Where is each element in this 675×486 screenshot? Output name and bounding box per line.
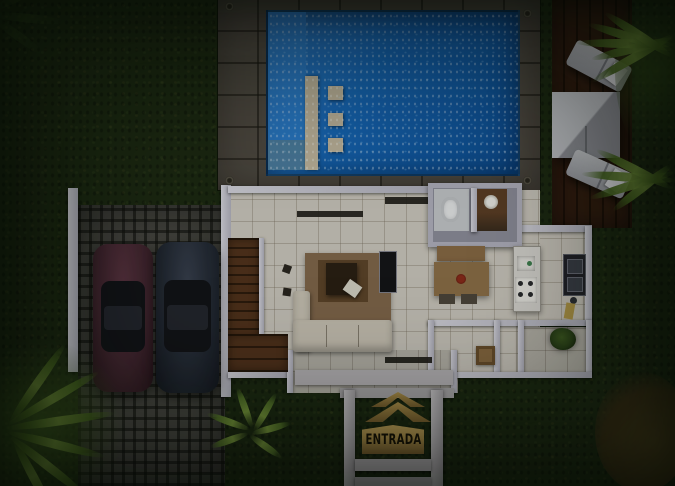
car-roof: [167, 305, 207, 329]
sideboard: [437, 246, 485, 261]
tv-panel: [379, 251, 397, 293]
laundry-basin: [476, 346, 495, 365]
oven-door: [567, 259, 583, 274]
burner: [518, 281, 523, 286]
car-roof: [104, 306, 142, 330]
sofa-cushion-seam: [326, 325, 327, 347]
bathroom: [428, 183, 522, 247]
staircase: [228, 238, 260, 338]
sliding-door: [297, 211, 363, 217]
walkway-slab: [295, 370, 453, 385]
south-wall-left: [228, 372, 290, 378]
swimming-pool: [266, 10, 520, 176]
deck-drain-icon: [523, 176, 532, 185]
fern-frond: [248, 433, 283, 461]
cooktop: [515, 277, 537, 303]
pool-step-pad: [328, 113, 343, 126]
walkway-rail-left: [344, 390, 355, 486]
sofa-cushion-seam: [358, 325, 359, 347]
sliding-door: [385, 197, 429, 204]
walkway-slat: [355, 459, 431, 471]
north-wall: [228, 186, 432, 193]
bush: [595, 372, 675, 486]
entrada-sign-label: ENTRADA: [365, 431, 421, 447]
palm-frond: [6, 342, 68, 425]
east-wall-lower: [586, 320, 592, 376]
oven-door: [567, 277, 583, 292]
potted-plant: [550, 328, 576, 350]
burner: [528, 292, 533, 297]
car-navy: [156, 242, 219, 393]
pool-step-pad: [328, 138, 343, 152]
service-left-wall: [428, 320, 434, 376]
entrada-sign: ENTRADA: [362, 425, 424, 454]
house-floorplan-render: ENTRADA: [0, 0, 675, 486]
vanity-sink: [484, 195, 498, 209]
burner: [528, 281, 533, 286]
car-maroon: [93, 244, 153, 392]
pool-step-pad: [328, 86, 343, 100]
pool-shallow-lane: [268, 12, 306, 170]
sofa: [293, 320, 392, 352]
deck-drain-icon: [523, 9, 532, 18]
pool-bench: [305, 76, 318, 170]
garage-left-wall: [68, 188, 78, 372]
parasol: [552, 92, 620, 158]
toilet: [441, 197, 460, 222]
burner: [518, 292, 523, 297]
dining-chair: [439, 294, 455, 304]
walkway-slat: [355, 477, 431, 486]
pouf: [282, 287, 291, 296]
deck-drain-icon: [225, 176, 234, 185]
east-wall: [585, 226, 592, 326]
oven-stack: [563, 254, 586, 296]
service-north-wall: [428, 320, 592, 326]
stair-landing: [228, 334, 288, 372]
kitchen-sink: [517, 256, 535, 271]
dining-chair: [461, 294, 477, 304]
stair-wall: [259, 238, 264, 334]
service-divider-wall: [518, 320, 524, 376]
centerpiece: [456, 274, 466, 284]
walkway-rail-right: [431, 390, 443, 486]
porch-step: [385, 357, 432, 363]
pool-steps: [268, 140, 314, 170]
deck-drain-icon: [225, 2, 234, 11]
faucet: [527, 261, 532, 266]
